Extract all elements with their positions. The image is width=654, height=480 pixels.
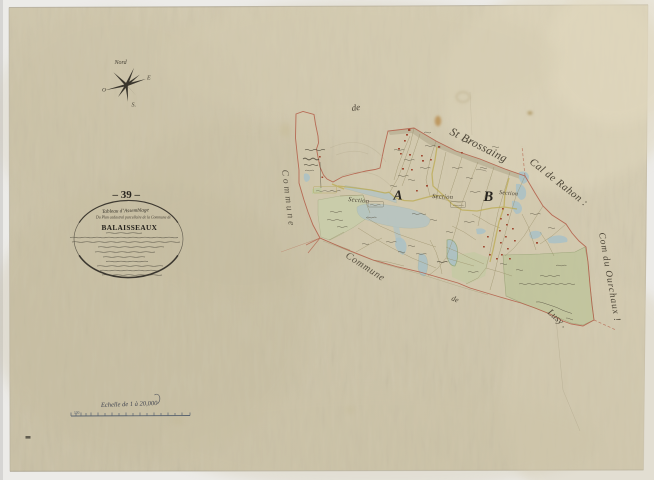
svg-text:Section: Section: [432, 193, 454, 201]
svg-text:BALAISSEAUX: BALAISSEAUX: [102, 223, 158, 232]
svg-text:O: O: [102, 88, 106, 94]
svg-text:B: B: [483, 189, 494, 205]
svg-text:100: 100: [74, 411, 80, 415]
svg-text:de: de: [351, 102, 361, 113]
svg-text:E: E: [146, 76, 151, 82]
svg-text:– 39 –: – 39 –: [112, 189, 141, 201]
svg-text:A: A: [393, 188, 403, 203]
svg-text:Du Plan cadastral parcellaire: Du Plan cadastral parcellaire de la Comm…: [95, 216, 171, 220]
svg-text:Nord: Nord: [114, 60, 128, 66]
svg-text:S.: S.: [132, 103, 137, 109]
